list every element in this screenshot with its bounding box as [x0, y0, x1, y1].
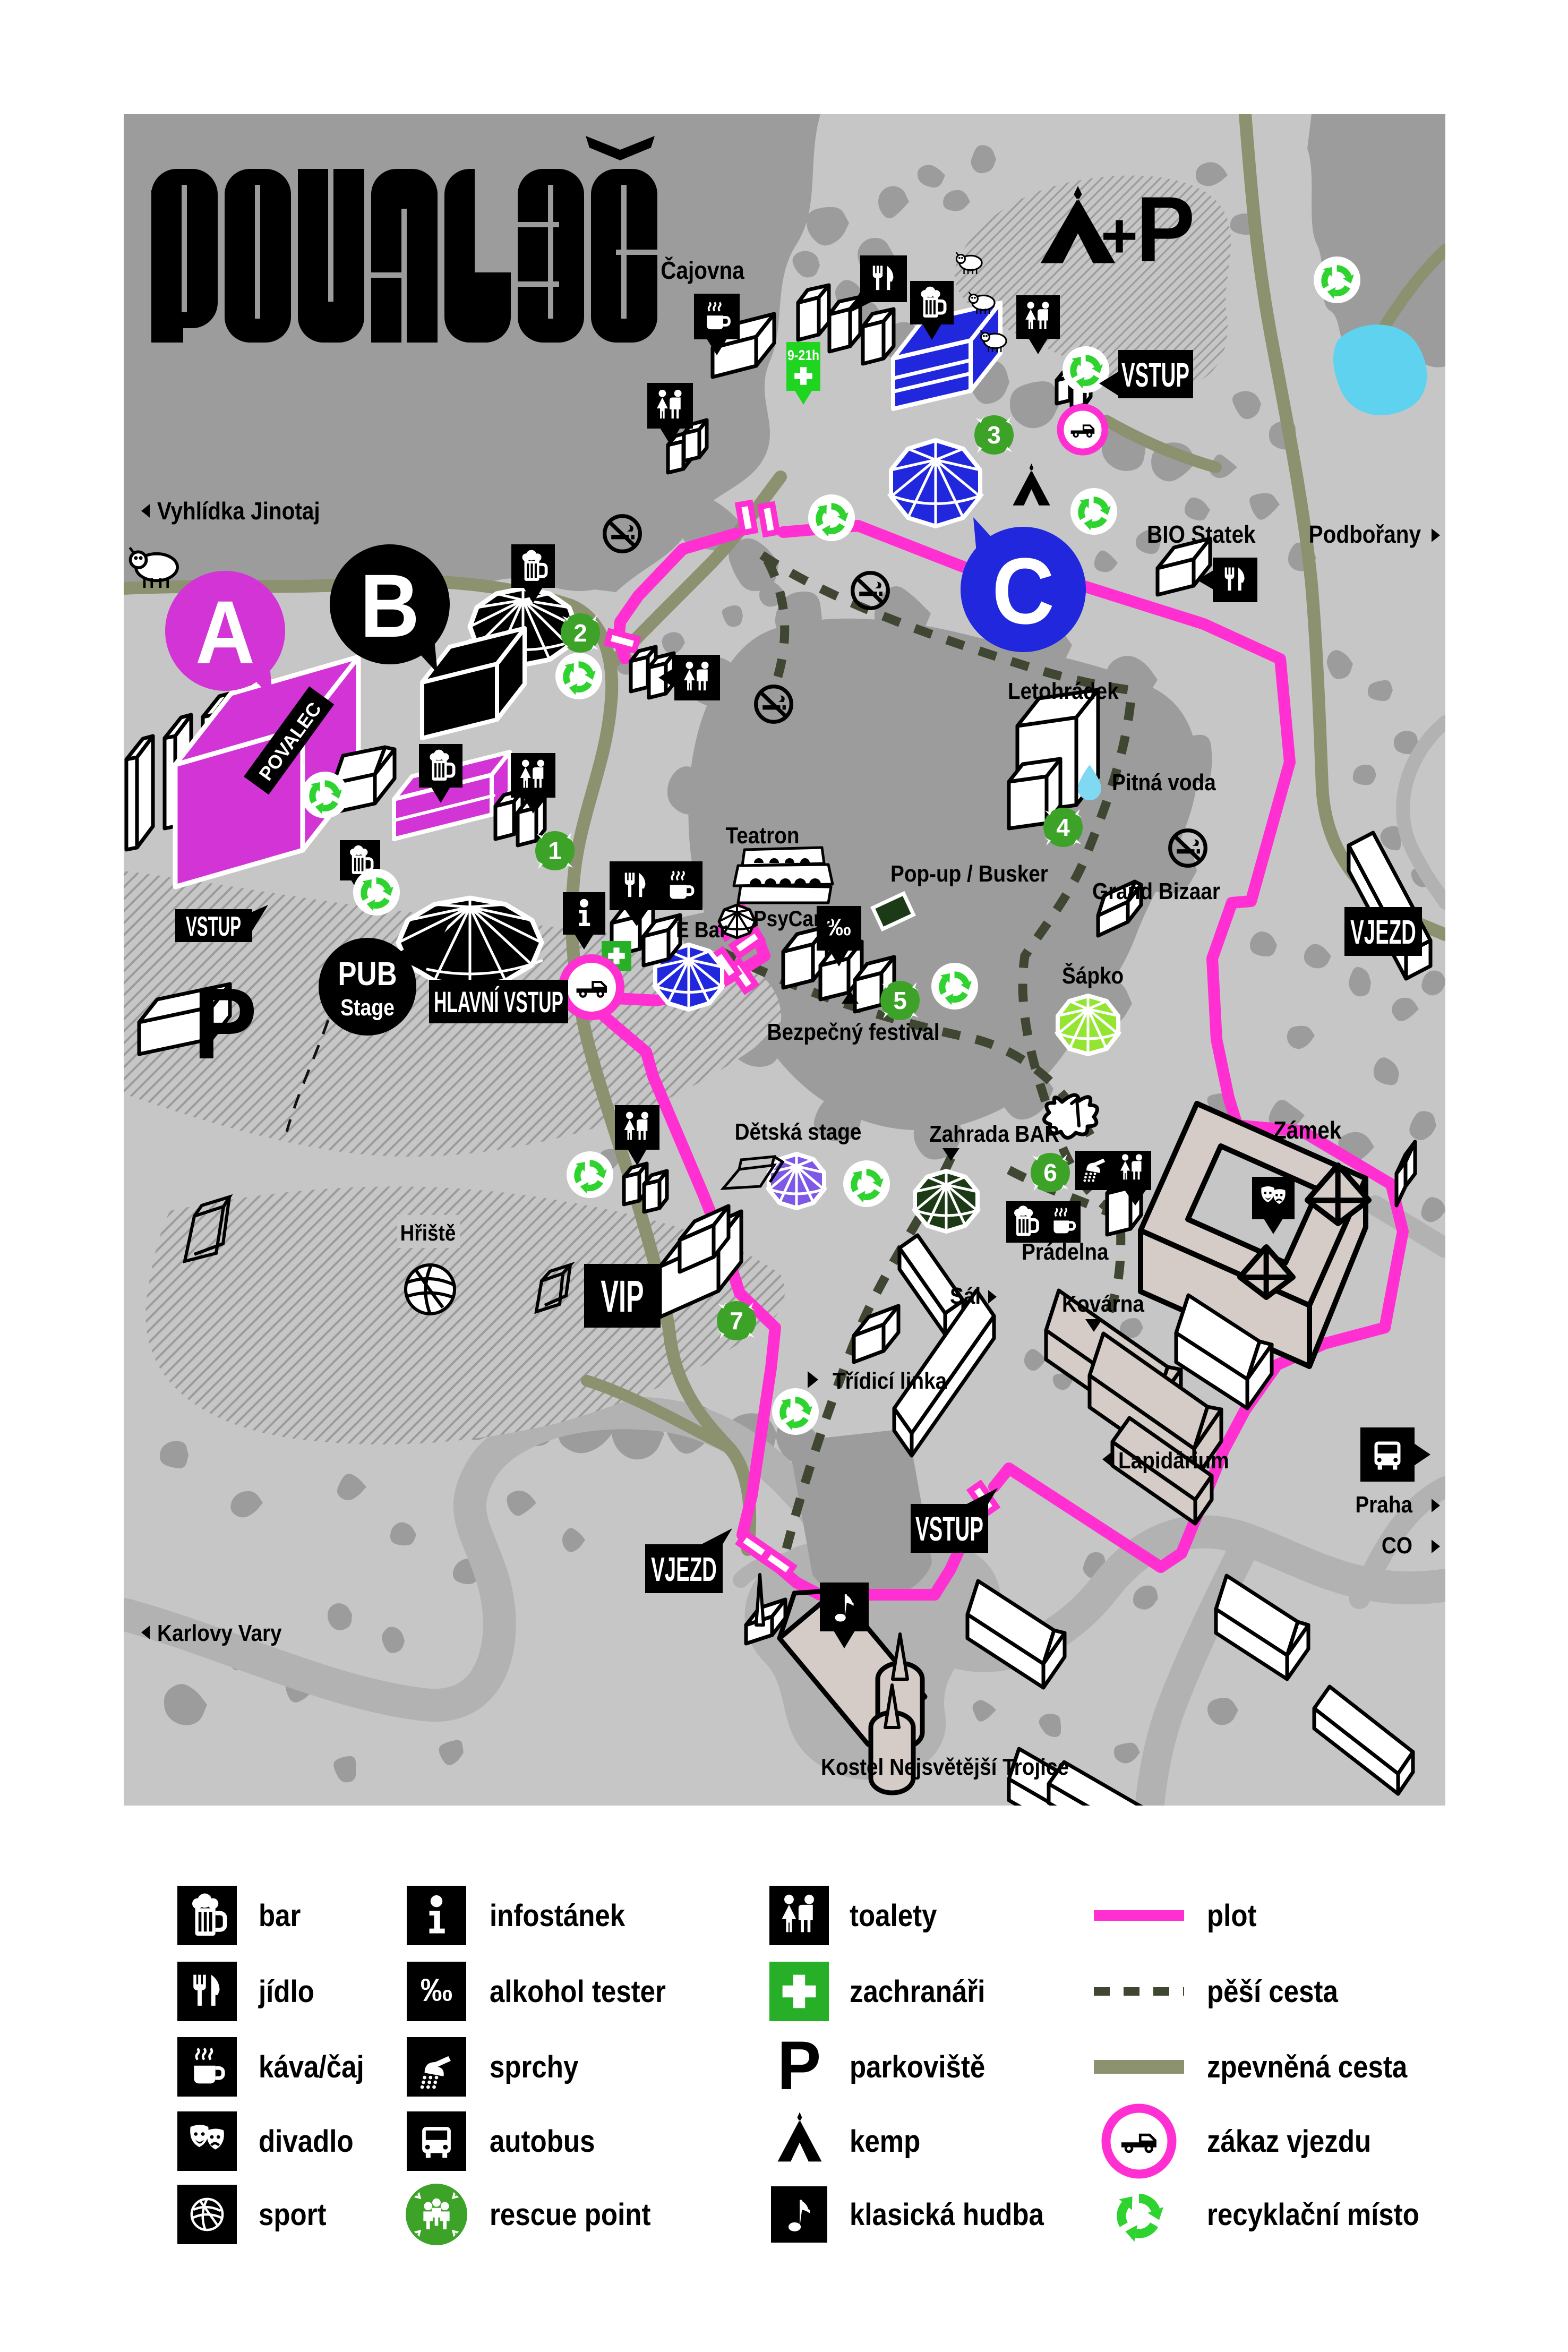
svg-text:Prádelna: Prádelna: [1022, 1238, 1109, 1265]
svg-text:VJEZD: VJEZD: [651, 1551, 717, 1589]
svg-text:Hřiště: Hřiště: [400, 1221, 456, 1246]
svg-text:parkoviště: parkoviště: [850, 2050, 985, 2084]
svg-text:toalety: toalety: [850, 1898, 937, 1933]
svg-text:VSTUP: VSTUP: [1121, 356, 1189, 395]
svg-text:infostánek: infostánek: [490, 1898, 626, 1933]
svg-text:zachranáři: zachranáři: [850, 1974, 985, 2009]
svg-text:4: 4: [1056, 814, 1070, 841]
svg-text:9-21h: 9-21h: [787, 347, 819, 363]
svg-text:Dětská stage: Dětská stage: [735, 1118, 862, 1145]
svg-text:pěší cesta: pěší cesta: [1207, 1974, 1338, 2009]
svg-text:alkohol tester: alkohol tester: [490, 1974, 666, 2009]
svg-text:PsyCare: PsyCare: [753, 906, 832, 931]
svg-text:sport: sport: [259, 2197, 327, 2232]
svg-text:Karlovy Vary: Karlovy Vary: [157, 1620, 282, 1646]
svg-text:Pitná voda: Pitná voda: [1112, 769, 1216, 796]
svg-text:kemp: kemp: [850, 2124, 920, 2159]
svg-text:Podbořany: Podbořany: [1309, 521, 1421, 549]
svg-text:Zahrada BAR: Zahrada BAR: [929, 1121, 1059, 1147]
svg-text:1: 1: [548, 837, 562, 865]
svg-text:Letohrádek: Letohrádek: [1008, 678, 1119, 704]
svg-text:autobus: autobus: [490, 2124, 595, 2159]
svg-text:bar: bar: [259, 1898, 301, 1933]
svg-text:Třídicí linka: Třídicí linka: [833, 1367, 947, 1394]
svg-text:zpevněná cesta: zpevněná cesta: [1207, 2050, 1408, 2084]
svg-text:Kostel Nejsvětější Trojice: Kostel Nejsvětější Trojice: [821, 1754, 1069, 1780]
svg-text:5: 5: [893, 987, 907, 1014]
svg-text:2: 2: [573, 619, 587, 647]
svg-text:VSTUP: VSTUP: [186, 911, 241, 942]
svg-text:Praha: Praha: [1355, 1491, 1412, 1518]
svg-text:B: B: [360, 556, 419, 656]
svg-text:Teatron: Teatron: [725, 822, 799, 849]
svg-text:PUB: PUB: [338, 956, 397, 993]
svg-text:klasická hudba: klasická hudba: [850, 2197, 1044, 2232]
svg-text:3: 3: [987, 421, 1001, 449]
svg-text:Zámek: Zámek: [1273, 1117, 1342, 1144]
svg-text:A: A: [195, 583, 255, 682]
svg-text:C: C: [992, 539, 1055, 644]
svg-text:plot: plot: [1207, 1898, 1257, 1933]
svg-text:recyklační místo: recyklační místo: [1207, 2197, 1419, 2232]
svg-text:+: +: [1101, 200, 1138, 271]
svg-text:7: 7: [730, 1307, 743, 1335]
svg-text:káva/čaj: káva/čaj: [259, 2050, 364, 2084]
svg-text:P: P: [777, 2026, 821, 2104]
svg-text:sprchy: sprchy: [490, 2050, 579, 2084]
svg-text:jídlo: jídlo: [258, 1974, 314, 2009]
svg-text:Stage: Stage: [340, 994, 395, 1021]
svg-text:6: 6: [1043, 1159, 1057, 1186]
svg-text:VJEZD: VJEZD: [1350, 913, 1416, 952]
svg-text:Čajovna: Čajovna: [661, 257, 744, 285]
svg-text:Sál: Sál: [950, 1282, 981, 1309]
svg-text:CO: CO: [1382, 1532, 1412, 1559]
svg-text:P: P: [1136, 177, 1195, 281]
svg-text:BIO Statek: BIO Statek: [1147, 521, 1256, 549]
svg-text:Vyhlídka Jinotaj: Vyhlídka Jinotaj: [157, 498, 320, 525]
svg-text:Lapidárium: Lapidárium: [1118, 1447, 1229, 1474]
svg-text:P: P: [193, 968, 257, 1080]
svg-text:Pop-up / Busker: Pop-up / Busker: [890, 860, 1048, 887]
svg-text:zákaz vjezdu: zákaz vjezdu: [1207, 2124, 1371, 2159]
svg-text:rescue point: rescue point: [490, 2197, 650, 2232]
svg-text:Bezpečný festival: Bezpečný festival: [767, 1019, 940, 1045]
svg-text:E Bar: E Bar: [676, 918, 727, 943]
svg-text:HLAVNÍ VSTUP: HLAVNÍ VSTUP: [434, 985, 563, 1019]
svg-text:Kovárna: Kovárna: [1062, 1290, 1145, 1317]
svg-text:Šápko: Šápko: [1062, 962, 1124, 989]
svg-text:VIP: VIP: [601, 1271, 644, 1322]
svg-text:Grand Bizaar: Grand Bizaar: [1092, 878, 1220, 904]
svg-text:divadlo: divadlo: [259, 2124, 354, 2159]
svg-text:VSTUP: VSTUP: [915, 1510, 983, 1549]
